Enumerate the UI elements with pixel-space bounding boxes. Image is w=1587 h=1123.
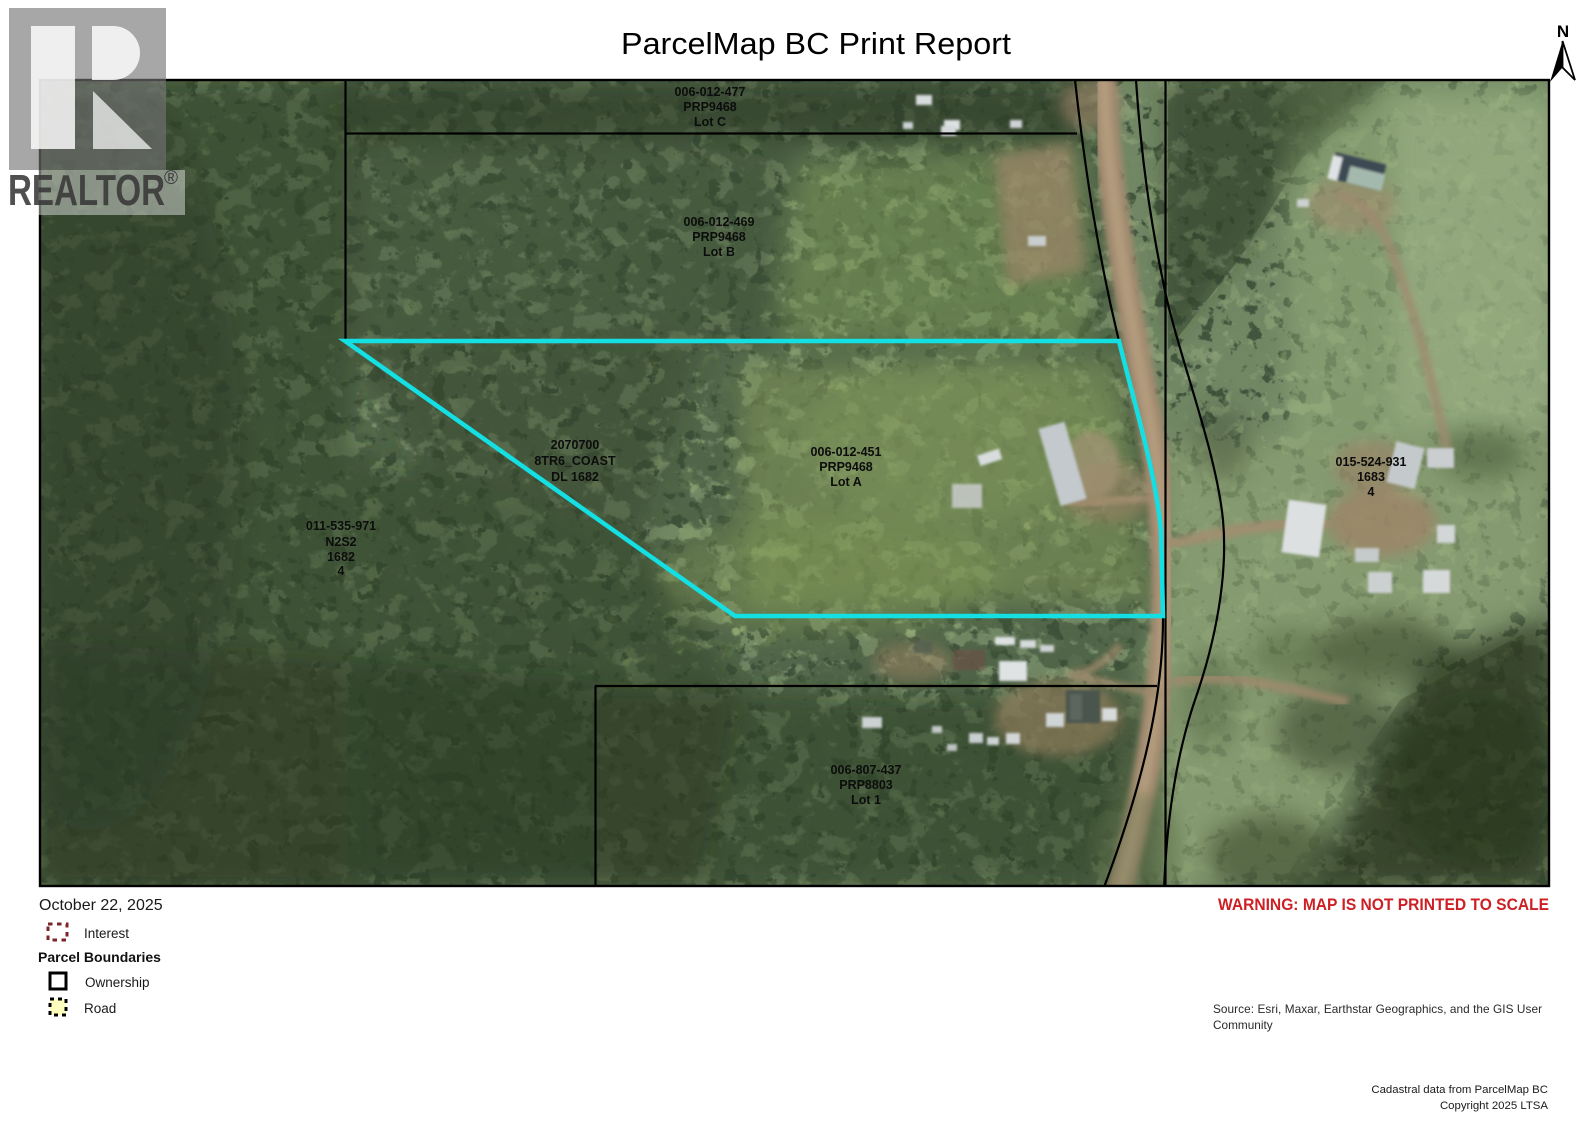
svg-text:Interest: Interest <box>84 926 129 941</box>
svg-text:Road: Road <box>84 1001 116 1016</box>
svg-text:1683: 1683 <box>1357 470 1385 484</box>
svg-text:Lot C: Lot C <box>694 115 726 129</box>
svg-text:DL 1682: DL 1682 <box>551 470 599 484</box>
svg-text:Lot A: Lot A <box>830 475 861 489</box>
svg-text:Copyright 2025 LTSA: Copyright 2025 LTSA <box>1440 1100 1548 1112</box>
svg-text:011-535-971: 011-535-971 <box>306 519 376 533</box>
svg-text:PRP8803: PRP8803 <box>839 778 893 792</box>
svg-text:006-012-477: 006-012-477 <box>675 85 746 99</box>
svg-text:®: ® <box>164 168 178 189</box>
svg-text:8TR6_COAST: 8TR6_COAST <box>534 454 616 468</box>
svg-text:006-012-451: 006-012-451 <box>811 445 882 459</box>
svg-text:PRP9468: PRP9468 <box>692 230 746 244</box>
svg-text:PRP9468: PRP9468 <box>819 460 873 474</box>
svg-text:October 22, 2025: October 22, 2025 <box>39 897 163 914</box>
svg-text:Community: Community <box>1213 1018 1273 1032</box>
svg-text:006-807-437: 006-807-437 <box>831 763 902 777</box>
svg-text:REALTOR: REALTOR <box>8 166 165 215</box>
svg-text:015-524-931: 015-524-931 <box>1336 455 1407 469</box>
svg-text:ParcelMap BC Print Report: ParcelMap BC Print Report <box>621 26 1011 61</box>
svg-text:N: N <box>1557 22 1569 41</box>
svg-text:PRP9468: PRP9468 <box>683 100 737 114</box>
svg-text:4: 4 <box>338 564 345 578</box>
svg-text:Source: Esri, Maxar, Earthstar: Source: Esri, Maxar, Earthstar Geographi… <box>1213 1002 1542 1016</box>
svg-text:Cadastral data from ParcelMap: Cadastral data from ParcelMap BC <box>1371 1084 1548 1096</box>
svg-text:Lot B: Lot B <box>703 245 735 259</box>
svg-text:WARNING: MAP IS NOT PRINTED TO: WARNING: MAP IS NOT PRINTED TO SCALE <box>1218 896 1549 914</box>
svg-text:006-012-469: 006-012-469 <box>684 215 755 229</box>
svg-text:4: 4 <box>1368 485 1375 499</box>
svg-text:Parcel Boundaries: Parcel Boundaries <box>38 949 161 965</box>
svg-text:1682: 1682 <box>327 550 355 564</box>
svg-text:N2S2: N2S2 <box>325 535 356 549</box>
svg-text:Ownership: Ownership <box>85 975 150 990</box>
svg-text:Lot 1: Lot 1 <box>851 793 881 807</box>
svg-text:2070700: 2070700 <box>551 438 600 452</box>
